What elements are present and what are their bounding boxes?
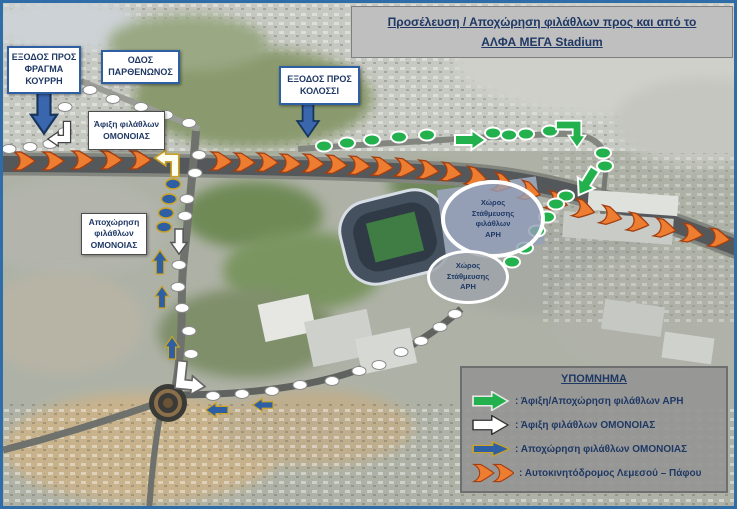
- map-title-line2: ΑΛΦΑ ΜΕΓΑ Stadium: [356, 35, 728, 49]
- parthenonos-street-box: ΟΔΟΣ ΠΑΡΘΕΝΩΝΟΣ: [101, 50, 180, 84]
- omonia-departure-route-dot: [159, 208, 174, 218]
- ari-route-right-arrow: [455, 130, 486, 150]
- omonia-arrival-route-dot: [182, 327, 196, 336]
- ari-fans-parking-ellipse: Χώρος Στάθμευσης φιλάθλων ΑΡΗ: [441, 180, 545, 258]
- legend-row-omonia-departure: : Αποχώρηση φιλάθλων ΟΜΟΝΟΙΑΣ: [470, 437, 718, 461]
- highway-chevron: [211, 152, 233, 171]
- parthenonos-line: ΟΔΟΣ: [103, 55, 178, 67]
- omonia-arrival-down-arrow: [171, 229, 187, 254]
- omonia-arrival-route-dot: [448, 310, 462, 319]
- ari-parking-ellipse: Χώρος Στάθμευσης ΑΡΗ: [427, 250, 509, 304]
- stadium-access-map: Προσέλευση / Αποχώρηση φιλάθλων προς και…: [0, 0, 737, 509]
- highway-chevron: [280, 154, 302, 173]
- omonia-arrival-route-dot: [3, 145, 16, 154]
- ari-route-dot: [339, 138, 355, 149]
- highway-chevron: [325, 155, 347, 174]
- omonia-arrival-route-dot: [171, 283, 185, 292]
- kolossi-exit-down-arrow: [297, 103, 319, 137]
- omonia-arrival-route-dot: [180, 195, 194, 204]
- legend-label: : Αυτοκινητόδρομος Λεμεσού – Πάφου: [519, 468, 701, 479]
- omonia-arrival-route-dot: [394, 348, 408, 357]
- omonia-arrival-route-dot: [293, 381, 307, 390]
- ari-fans-parking-line: Χώρος: [481, 198, 505, 209]
- highway-chevron: [572, 198, 597, 221]
- white-arrow-icon: [470, 415, 510, 435]
- highway-chevron: [101, 151, 122, 169]
- highway-chevron: [130, 151, 151, 169]
- omonia-arrival-route-dot: [188, 169, 202, 178]
- omonia-arrival-route-dot: [175, 304, 189, 313]
- omonia-departure-box: Αποχώρηση φιλάθλων ΟΜΟΝΟΙΑΣ: [81, 213, 147, 255]
- legend: ΥΠΟΜΝΗΜΑ : Άφιξη/Αποχώρηση φιλάθλων ΑΡΗ …: [460, 366, 728, 493]
- ari-route-turn-down-elbow-arrow: [556, 121, 585, 148]
- omonia-departure-line: φιλάθλων: [82, 228, 146, 239]
- ari-fans-parking-line: φιλάθλων: [476, 219, 511, 230]
- ari-route-dot: [391, 132, 407, 143]
- ari-route-dot: [364, 135, 380, 146]
- omonia-arrival-route-dot: [83, 86, 97, 95]
- exit-kolossi-line: ΚΟΛΟΣΣΙ: [281, 86, 358, 98]
- highway-chevron: [257, 153, 279, 172]
- omonia-arrival-line: ΟΜΟΝΟΙΑΣ: [89, 131, 164, 142]
- legend-row-highway: : Αυτοκινητόδρομος Λεμεσού – Πάφου: [470, 461, 718, 485]
- highway-chevron: [417, 160, 440, 180]
- legend-row-ari: : Άφιξη/Αποχώρηση φιλάθλων ΑΡΗ: [470, 389, 718, 413]
- omonia-arrival-turn-elbow-arrow: [174, 361, 207, 396]
- omonia-arrival-route-dot: [433, 323, 447, 332]
- highway-chevron: [72, 151, 93, 169]
- omonia-arrival-route-dot: [265, 387, 279, 396]
- omonia-arrival-route-dot: [414, 337, 428, 346]
- ari-parking-line: ΑΡΗ: [460, 282, 476, 293]
- highway-chevron: [14, 152, 35, 170]
- highway-chevron: [681, 223, 705, 244]
- highway-chevron: [626, 212, 650, 234]
- omonia-departure-merge-elbow-arrow: [155, 150, 179, 176]
- ari-route-dot: [485, 128, 501, 139]
- omonia-arrival-route-dot: [352, 367, 366, 376]
- exit-kourri-line: ΕΞΟΔΟΣ ΠΡΟΣ: [9, 52, 79, 64]
- ari-fans-parking-line: ΑΡΗ: [485, 230, 501, 241]
- omonia-arrival-route-dot: [23, 143, 37, 152]
- omonia-departure-route-dot: [162, 194, 177, 204]
- omonia-arrival-route-dot: [372, 361, 386, 370]
- omonia-arrival-route-dot: [172, 261, 186, 270]
- omonia-arrival-route-dot: [184, 350, 198, 359]
- exit-kourri-line: ΚΟΥΡΡΗ: [9, 76, 79, 88]
- omonia-departure-left-arrow-2: [253, 399, 273, 412]
- omonia-arrival-route-dot: [106, 95, 120, 104]
- omonia-arrival-route-dot: [178, 212, 192, 221]
- exit-kolossi-line: ΕΞΟΔΟΣ ΠΡΟΣ: [281, 74, 358, 86]
- omonia-departure-up-arrow-3: [165, 337, 179, 359]
- orange-chevrons-icon: [470, 463, 514, 483]
- parthenonos-line: ΠΑΡΘΕΝΩΝΟΣ: [103, 67, 178, 79]
- highway-chevron: [653, 218, 677, 239]
- map-title-line1: Προσέλευση / Αποχώρηση φιλάθλων προς και…: [356, 15, 728, 29]
- exit-kourri-line: ΦΡΑΓΜΑ: [9, 64, 79, 76]
- omonia-departure-route-dot: [166, 179, 181, 189]
- omonia-arrival-route-dot: [206, 392, 220, 401]
- omonia-departure-line: ΟΜΟΝΟΙΑΣ: [82, 240, 146, 251]
- omonia-arrival-route-dot: [58, 103, 72, 112]
- highway-chevron: [234, 153, 256, 172]
- omonia-departure-up-arrow-2: [155, 286, 169, 308]
- exit-kourri-dam-box: ΕΞΟΔΟΣ ΠΡΟΣ ΦΡΑΓΜΑ ΚΟΥΡΡΗ: [7, 46, 81, 94]
- omonia-arrival-route-dot: [235, 390, 249, 399]
- highway-chevron: [303, 154, 325, 173]
- omonia-arrival-line: Άφιξη φιλάθλων: [89, 119, 164, 130]
- highway-chevron: [394, 158, 417, 178]
- map-title: Προσέλευση / Αποχώρηση φιλάθλων προς και…: [351, 6, 733, 58]
- omonia-arrival-box: Άφιξη φιλάθλων ΟΜΟΝΟΙΑΣ: [88, 111, 165, 150]
- highway-chevron: [348, 156, 370, 175]
- ari-route-dot: [316, 141, 332, 152]
- blue-arrow-icon: [470, 439, 510, 459]
- omonia-arrival-route-dot: [325, 377, 339, 386]
- ari-route-dot: [504, 257, 520, 268]
- legend-label: : Αποχώρηση φιλάθλων ΟΜΟΝΟΙΑΣ: [515, 444, 687, 455]
- omonia-departure-up-arrow-1: [152, 250, 167, 274]
- ari-parking-line: Χώρος: [456, 261, 480, 272]
- ari-parking-line: Στάθμευσης: [447, 272, 489, 283]
- omonia-departure-route-dot: [157, 222, 172, 232]
- omonia-arrival-route-dot: [182, 119, 196, 128]
- ari-route-dot: [548, 199, 564, 210]
- highway-chevron: [440, 162, 464, 183]
- ari-route-dot: [419, 130, 435, 141]
- ari-fans-parking-line: Στάθμευσης: [472, 209, 514, 220]
- highway-chevron: [708, 228, 731, 249]
- legend-row-omonia-arrival: : Άφιξη φιλάθλων ΟΜΟΝΟΙΑΣ: [470, 413, 718, 437]
- highway-chevron: [371, 157, 393, 177]
- ari-route-dot: [518, 129, 534, 140]
- legend-label: : Άφιξη/Αποχώρηση φιλάθλων ΑΡΗ: [515, 396, 684, 407]
- highway-chevron: [43, 152, 64, 170]
- omonia-arrival-route-dot: [192, 151, 206, 160]
- highway-chevron: [599, 205, 624, 227]
- exit-kolossi-box: ΕΞΟΔΟΣ ΠΡΟΣ ΚΟΛΟΣΣΙ: [279, 66, 360, 105]
- legend-title: ΥΠΟΜΝΗΜΑ: [470, 373, 718, 385]
- legend-label: : Άφιξη φιλάθλων ΟΜΟΝΟΙΑΣ: [515, 420, 655, 431]
- omonia-departure-line: Αποχώρηση: [82, 217, 146, 228]
- kourri-exit-down-arrow: [31, 93, 57, 134]
- ari-route-dot: [595, 148, 611, 159]
- green-arrow-icon: [470, 391, 510, 411]
- omonia-departure-left-arrow-1: [206, 403, 228, 417]
- ari-route-dot: [597, 161, 613, 172]
- ari-route-dot: [501, 130, 517, 141]
